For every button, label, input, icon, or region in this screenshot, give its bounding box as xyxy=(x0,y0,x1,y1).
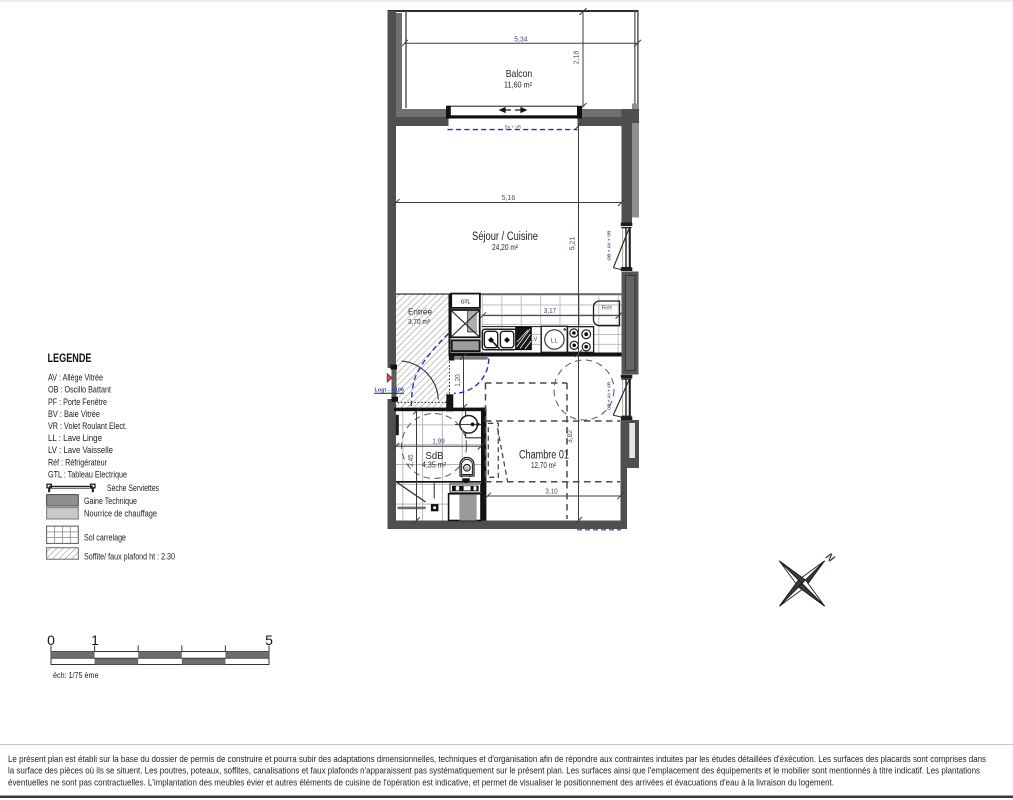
svg-text:3,17: 3,17 xyxy=(544,308,557,315)
svg-text:2,45: 2,45 xyxy=(408,454,415,467)
svg-text:GTL: GTL xyxy=(461,299,471,305)
svg-text:4,35 m²: 4,35 m² xyxy=(422,461,446,470)
svg-text:Sol carrelage: Sol carrelage xyxy=(84,533,126,544)
svg-text:LL : Lave Linge: LL : Lave Linge xyxy=(48,433,102,444)
svg-text:Sèche Serviettes: Sèche Serviettes xyxy=(107,483,159,494)
svg-text:LL: LL xyxy=(551,337,559,344)
svg-text:Chambre 01: Chambre 01 xyxy=(519,450,569,462)
svg-text:Entrée: Entrée xyxy=(408,307,432,317)
svg-text:LEGENDE: LEGENDE xyxy=(48,353,92,365)
svg-text:24,20 m²: 24,20 m² xyxy=(492,243,518,252)
svg-text:Nourrice de chauffage: Nourrice de chauffage xyxy=(84,508,157,519)
svg-text:Soffite/ faux plafond ht : 2.3: Soffite/ faux plafond ht : 2.30 xyxy=(84,551,175,562)
svg-text:Le présent plan est établi sur: Le présent plan est établi sur la base d… xyxy=(8,754,986,764)
svg-text:OB + AV + VR: OB + AV + VR xyxy=(607,230,612,261)
svg-text:5,16: 5,16 xyxy=(502,193,516,202)
svg-text:LV: LV xyxy=(531,336,539,343)
svg-text:PF : Porte Fenêtre: PF : Porte Fenêtre xyxy=(48,397,107,408)
svg-text:3,82: 3,82 xyxy=(567,430,574,443)
svg-text:BV + VR: BV + VR xyxy=(505,124,521,129)
svg-text:AV : Allège Vitrée: AV : Allège Vitrée xyxy=(48,373,103,384)
svg-text:BV : Baie Vitrée: BV : Baie Vitrée xyxy=(48,409,100,420)
svg-text:Balcon: Balcon xyxy=(506,68,533,80)
svg-text:Réf: Réf xyxy=(601,305,612,311)
svg-text:VR : Volet Roulant Elect.: VR : Volet Roulant Elect. xyxy=(48,421,127,432)
svg-text:11,60 m²: 11,60 m² xyxy=(504,81,532,90)
svg-text:5,34: 5,34 xyxy=(514,35,528,44)
svg-text:1,20: 1,20 xyxy=(455,374,462,387)
svg-text:2,18: 2,18 xyxy=(572,51,581,65)
svg-text:OB : Oscillo Battant: OB : Oscillo Battant xyxy=(48,385,111,396)
svg-text:GTL : Tableau Electrique: GTL : Tableau Electrique xyxy=(48,469,127,480)
svg-text:la surface des pièces où ils s: la surface des pièces où ils se situent.… xyxy=(8,766,980,776)
svg-text:1,99: 1,99 xyxy=(432,438,445,445)
svg-text:12,70 m²: 12,70 m² xyxy=(531,461,556,470)
svg-text:Réf : Réfrigérateur: Réf : Réfrigérateur xyxy=(48,457,108,468)
svg-text:LV : Lave Vaisselle: LV : Lave Vaisselle xyxy=(48,445,113,456)
svg-text:Gaine Technique: Gaine Technique xyxy=(84,496,137,507)
svg-text:éventuelles ne sont pas contra: éventuelles ne sont pas contractuelles. … xyxy=(8,777,834,787)
svg-text:3,10: 3,10 xyxy=(545,489,558,496)
svg-text:1: 1 xyxy=(91,632,99,648)
svg-text:5,21: 5,21 xyxy=(568,237,577,251)
svg-text:Séjour / Cuisine: Séjour / Cuisine xyxy=(472,231,538,243)
svg-text:éch: 1/75 ème: éch: 1/75 ème xyxy=(53,670,99,680)
svg-text:3,70 m²: 3,70 m² xyxy=(408,317,430,326)
